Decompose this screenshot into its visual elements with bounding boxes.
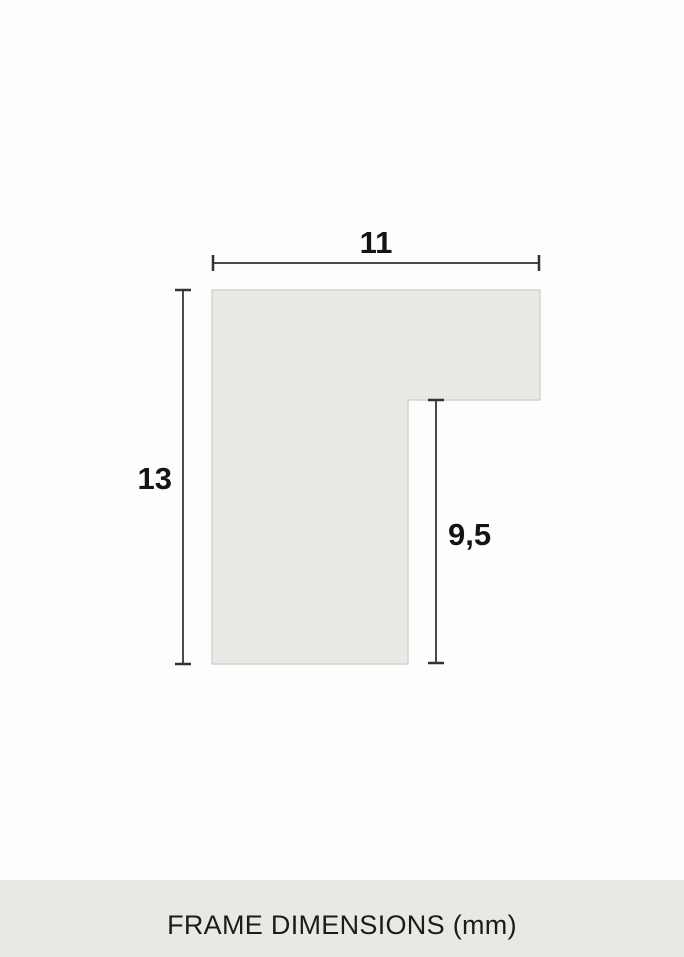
footer-bar: FRAME DIMENSIONS (mm)	[0, 880, 684, 957]
depth-dimension-label: 9,5	[448, 517, 491, 552]
frame-profile-diagram: 11 13 9,5	[0, 0, 684, 880]
depth-dimension: 9,5	[428, 400, 491, 663]
width-dimension-label: 11	[360, 225, 393, 260]
height-dimension-label: 13	[138, 461, 172, 496]
height-dimension: 13	[138, 290, 191, 664]
frame-profile-shape	[212, 290, 540, 664]
width-dimension: 11	[213, 225, 539, 271]
frame-dimensions-figure: 11 13 9,5 FRAME DIMENSIONS (mm)	[0, 0, 684, 957]
footer-title: FRAME DIMENSIONS (mm)	[167, 910, 517, 941]
